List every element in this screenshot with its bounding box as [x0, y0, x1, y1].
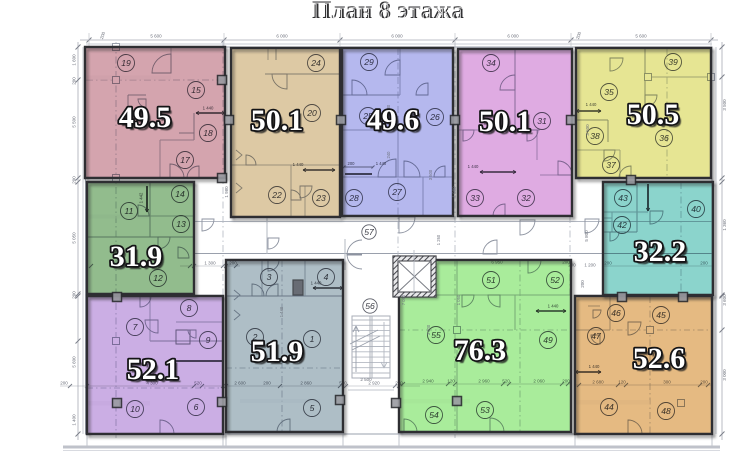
svg-text:200: 200 — [60, 381, 68, 386]
svg-text:240: 240 — [386, 151, 391, 159]
svg-text:50.1: 50.1 — [479, 105, 532, 138]
svg-text:6 000: 6 000 — [276, 34, 288, 39]
svg-text:200: 200 — [72, 176, 77, 184]
svg-text:5 800: 5 800 — [584, 230, 589, 242]
svg-text:52.6: 52.6 — [633, 342, 686, 375]
svg-text:7 050: 7 050 — [401, 294, 406, 305]
svg-text:1 440: 1 440 — [279, 306, 284, 317]
svg-text:1 980: 1 980 — [224, 186, 229, 198]
svg-text:32.2: 32.2 — [634, 235, 687, 268]
svg-text:1 300: 1 300 — [204, 261, 216, 266]
svg-text:1 600: 1 600 — [72, 54, 77, 66]
svg-text:5 600: 5 600 — [150, 34, 162, 39]
svg-text:200: 200 — [72, 77, 77, 85]
svg-text:3 500: 3 500 — [428, 169, 433, 180]
svg-text:1 050: 1 050 — [456, 294, 461, 305]
svg-text:5 050: 5 050 — [72, 232, 77, 244]
svg-text:3 000: 3 000 — [426, 324, 431, 335]
svg-text:76.3: 76.3 — [454, 334, 507, 367]
svg-text:3 500: 3 500 — [585, 124, 590, 136]
svg-text:1 260: 1 260 — [436, 234, 441, 245]
svg-text:5 600: 5 600 — [635, 34, 647, 39]
svg-text:1 980: 1 980 — [452, 186, 457, 198]
svg-text:3 000: 3 000 — [722, 369, 727, 381]
svg-text:200: 200 — [72, 291, 77, 299]
svg-text:51.9: 51.9 — [251, 335, 304, 368]
svg-text:2 500: 2 500 — [360, 377, 372, 382]
svg-text:56: 56 — [365, 301, 375, 311]
svg-text:49.5: 49.5 — [119, 101, 172, 134]
svg-text:3 500: 3 500 — [722, 99, 727, 111]
svg-text:1 360: 1 360 — [722, 219, 727, 231]
svg-text:План 8 этажа: План 8 этажа — [313, 0, 465, 25]
svg-text:57: 57 — [364, 227, 375, 237]
svg-text:50.1: 50.1 — [251, 104, 304, 137]
svg-text:1 400: 1 400 — [72, 414, 77, 426]
svg-text:1 200: 1 200 — [584, 263, 596, 268]
svg-text:200: 200 — [580, 280, 585, 288]
svg-text:3 600: 3 600 — [722, 294, 727, 306]
svg-text:6 000: 6 000 — [391, 34, 403, 39]
svg-text:6 000: 6 000 — [507, 34, 519, 39]
svg-text:31.9: 31.9 — [110, 240, 163, 273]
svg-text:52.1: 52.1 — [127, 353, 180, 386]
svg-text:5 600: 5 600 — [72, 356, 77, 368]
svg-text:50.5: 50.5 — [627, 98, 680, 131]
svg-text:5 500: 5 500 — [72, 116, 77, 128]
svg-text:49.6: 49.6 — [367, 104, 420, 137]
